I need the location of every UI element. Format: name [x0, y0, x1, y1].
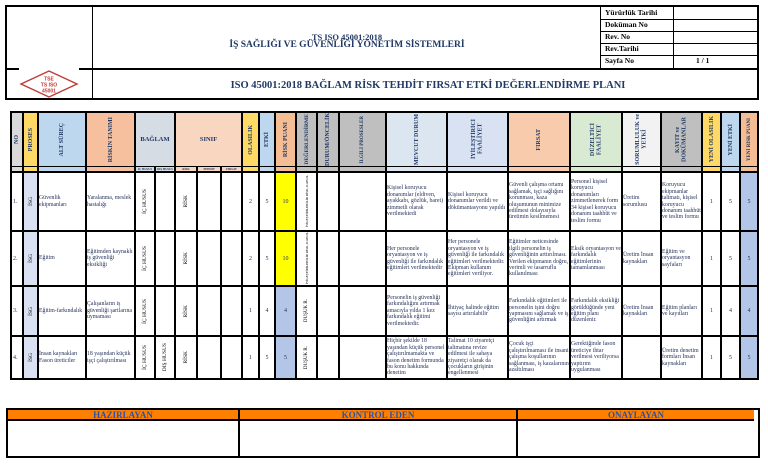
svg-text:45001: 45001 — [42, 89, 56, 95]
